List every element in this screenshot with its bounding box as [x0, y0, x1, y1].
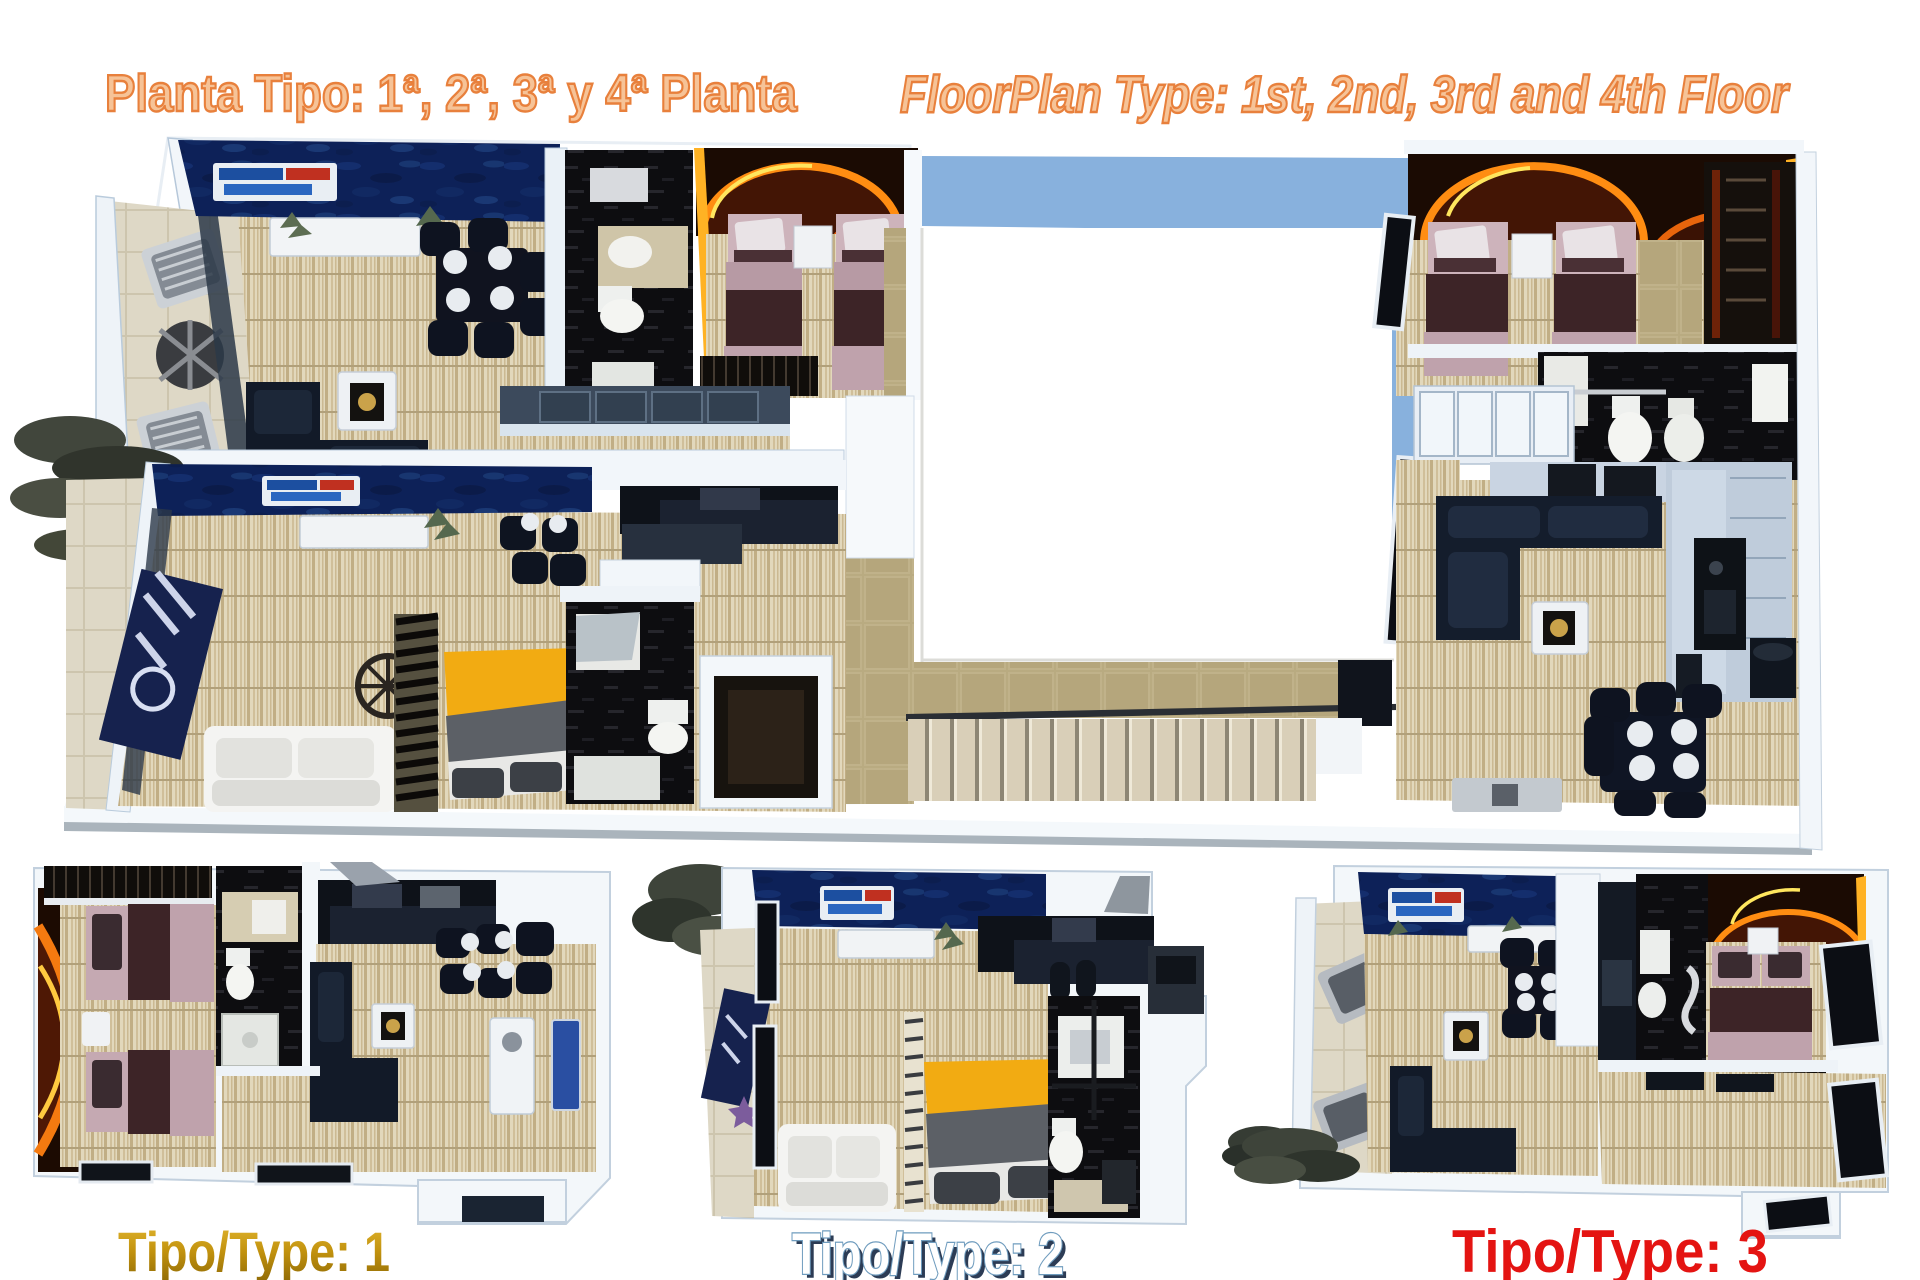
svg-text:Tipo/Type: 1: Tipo/Type: 1: [118, 1220, 390, 1280]
svg-text:Tipo/Type: 3: Tipo/Type: 3: [1452, 1218, 1768, 1280]
svg-text:FloorPlan Type: 1st, 2nd, 3rd: FloorPlan Type: 1st, 2nd, 3rd and 4th Fl…: [900, 66, 1790, 124]
svg-text:Planta Tipo: 1ª, 2ª, 3ª y 4ª P: Planta Tipo: 1ª, 2ª, 3ª y 4ª Planta: [105, 65, 798, 123]
svg-text:Tipo/Type: 2: Tipo/Type: 2: [792, 1222, 1064, 1280]
